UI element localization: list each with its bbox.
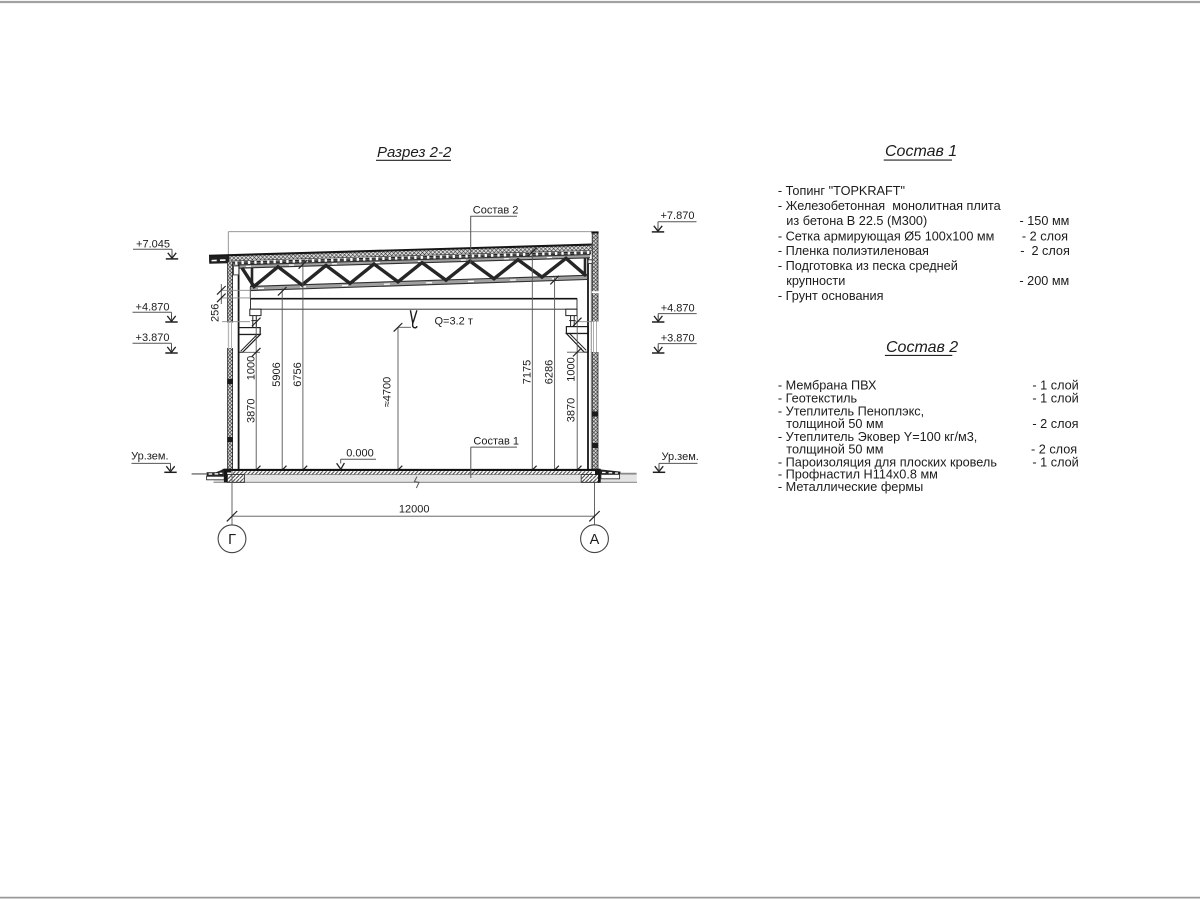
svg-text:- Топинг "TOPKRAFT": - Топинг "TOPKRAFT" <box>778 184 905 198</box>
svg-text:толщиной 50 мм: толщиной 50 мм <box>786 417 883 431</box>
svg-text:3870: 3870 <box>566 398 578 422</box>
svg-text:≈4700: ≈4700 <box>381 377 393 408</box>
svg-text:256: 256 <box>210 304 222 322</box>
svg-text:- 1 слой: - 1 слой <box>1032 379 1078 393</box>
svg-text:1000: 1000 <box>566 357 578 381</box>
svg-text:Ур.зем.: Ур.зем. <box>662 451 699 463</box>
svg-text:Состав 2: Состав 2 <box>473 205 519 217</box>
svg-text:7175: 7175 <box>522 360 534 384</box>
svg-text:- Металлические фермы: - Металлические фермы <box>778 480 923 494</box>
svg-text:- 200 мм: - 200 мм <box>1019 274 1069 288</box>
svg-text:- 1 слой: - 1 слой <box>1032 455 1078 469</box>
svg-text:5906: 5906 <box>271 362 283 386</box>
svg-text:крупности: крупности <box>786 274 845 288</box>
svg-text:- Геотекстиль: - Геотекстиль <box>778 392 858 406</box>
svg-text:+3.870: +3.870 <box>661 333 695 345</box>
svg-text:Разрез 2-2: Разрез 2-2 <box>377 144 452 161</box>
svg-text:Состав 1: Состав 1 <box>885 143 957 160</box>
svg-text:Q=3.2 т: Q=3.2 т <box>435 315 473 327</box>
svg-text:- Мембрана ПВХ: - Мембрана ПВХ <box>778 379 877 393</box>
svg-text:Состав 2: Состав 2 <box>886 339 958 356</box>
svg-text:+7.870: +7.870 <box>661 210 695 222</box>
svg-text:- 2 слоя: - 2 слоя <box>1032 417 1078 431</box>
svg-text:0.000: 0.000 <box>346 447 374 459</box>
svg-text:- Сетка армирующая Ø5 100х100: - Сетка армирующая Ø5 100х100 мм <box>778 229 994 243</box>
svg-text:Г: Г <box>228 532 236 548</box>
svg-text:+3.870: +3.870 <box>136 332 170 344</box>
svg-text:+4.870: +4.870 <box>136 301 170 313</box>
svg-text:- 150 мм: - 150 мм <box>1020 214 1070 228</box>
svg-text:- Подготовка из песка средней: - Подготовка из песка средней <box>778 259 958 273</box>
svg-text:1000: 1000 <box>246 356 258 380</box>
svg-text:- Железобетонная монолитная п: - Железобетонная монолитная плита <box>778 199 1002 213</box>
svg-text:+7.045: +7.045 <box>136 238 170 250</box>
svg-text:6756: 6756 <box>292 362 304 386</box>
svg-text:6286: 6286 <box>544 360 556 384</box>
svg-text:Состав 1: Состав 1 <box>473 436 519 448</box>
svg-text:Ур.зем.: Ур.зем. <box>131 450 168 462</box>
svg-text:А: А <box>590 532 600 548</box>
svg-text:3870: 3870 <box>246 399 258 423</box>
svg-text:- 1 слой: - 1 слой <box>1032 392 1078 406</box>
svg-text:из бетона В 22.5 (М300): из бетона В 22.5 (М300) <box>786 214 927 228</box>
svg-text:- 2 слоя: - 2 слоя <box>1020 244 1070 258</box>
svg-text:- Грунт основания: - Грунт основания <box>778 289 884 303</box>
svg-text:+4.870: +4.870 <box>661 303 695 315</box>
svg-text:12000: 12000 <box>399 504 430 516</box>
svg-text:- Пленка полиэтиленовая: - Пленка полиэтиленовая <box>778 244 929 258</box>
svg-text:- 2 слоя: - 2 слоя <box>1022 229 1068 243</box>
